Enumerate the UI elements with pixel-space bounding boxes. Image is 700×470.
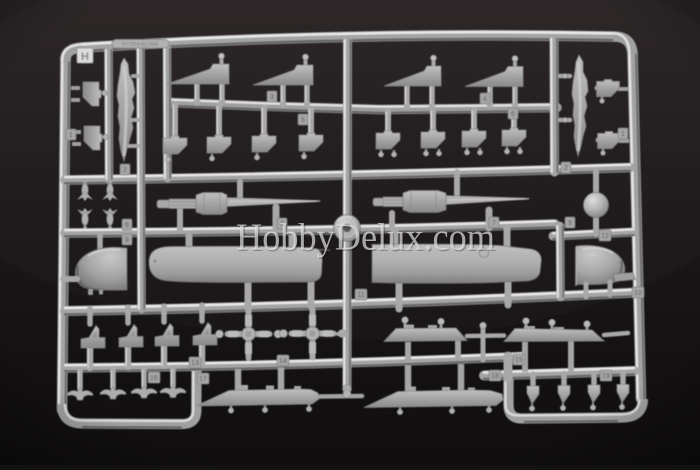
svg-text:HobbyDelux.com: HobbyDelux.com: [236, 217, 495, 259]
